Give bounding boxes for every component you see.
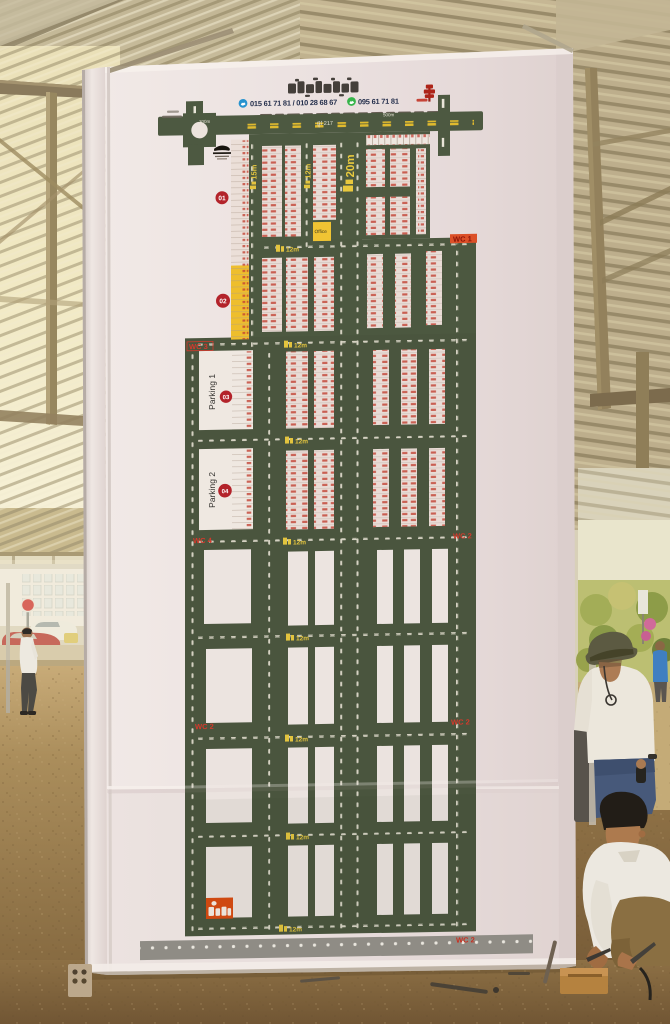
svg-text:12m: 12m: [296, 635, 309, 642]
svg-text:12m: 12m: [286, 246, 299, 253]
svg-text:500m: 500m: [383, 112, 395, 117]
svg-text:01: 01: [218, 195, 226, 202]
svg-text:03: 03: [223, 395, 230, 401]
svg-text:WC 2: WC 2: [456, 935, 475, 944]
svg-text:WC 2: WC 2: [195, 722, 214, 731]
svg-text:WC 3: WC 3: [189, 342, 208, 351]
svg-text:015 61 71 81 / 010 28 68 67: 015 61 71 81 / 010 28 68 67: [250, 98, 337, 109]
svg-text:12m: 12m: [293, 539, 306, 546]
svg-text:20m: 20m: [345, 154, 357, 177]
svg-text:WC 2: WC 2: [453, 531, 472, 540]
svg-text:12m: 12m: [294, 342, 307, 349]
svg-text:WC 2: WC 2: [451, 717, 470, 726]
svg-text:04: 04: [222, 489, 229, 495]
svg-text:095 61 71 81: 095 61 71 81: [358, 97, 399, 107]
svg-text:WC 4: WC 4: [193, 536, 213, 545]
svg-text:WC 1: WC 1: [453, 234, 472, 243]
svg-text:15m: 15m: [250, 164, 259, 179]
svg-text:12m: 12m: [304, 163, 313, 178]
svg-text:Parking 2: Parking 2: [207, 472, 217, 508]
svg-text:12m: 12m: [295, 438, 308, 445]
svg-text:12m: 12m: [295, 736, 308, 743]
svg-text:300m: 300m: [199, 119, 211, 124]
svg-text:Office: Office: [315, 229, 328, 235]
svg-text:Parking 1: Parking 1: [207, 374, 217, 410]
svg-text:ផ្លូវ 217: ផ្លូវ 217: [317, 120, 333, 128]
svg-text:02: 02: [219, 298, 227, 305]
